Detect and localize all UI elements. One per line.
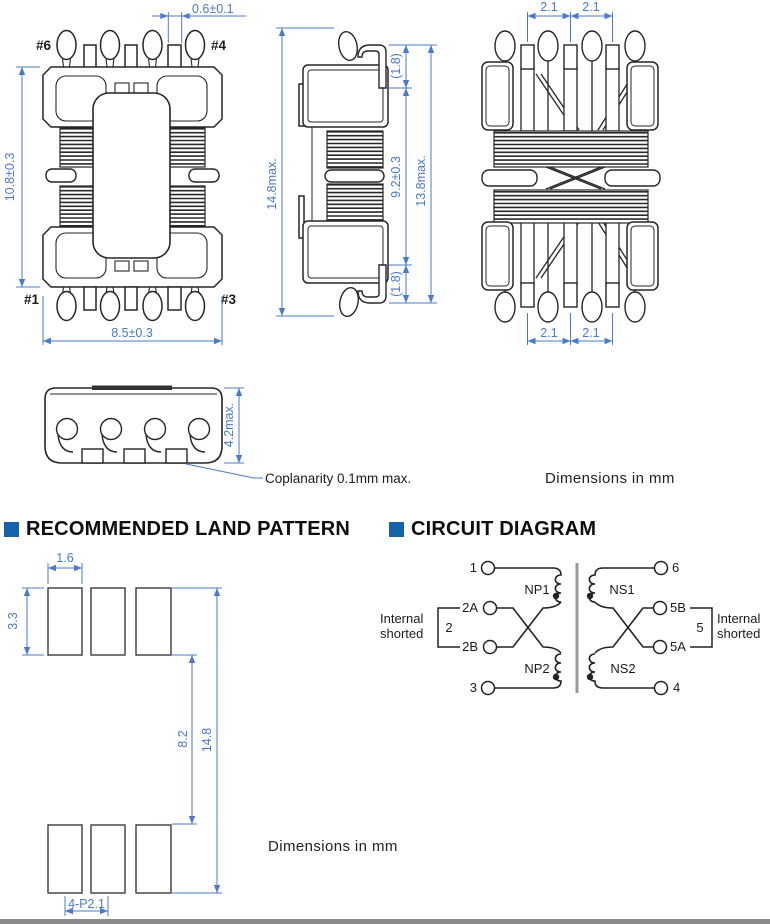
back-pin: [625, 31, 645, 61]
dim-row-gap: 8.2: [176, 730, 190, 747]
front-top-tab: [168, 45, 181, 68]
dim-total-height: 13.8max.: [414, 155, 428, 206]
dim-front-height: 10.8±0.3: [3, 153, 17, 202]
dimensions-note-top: Dimensions in mm: [545, 470, 675, 487]
dim-overall-height: 14.8: [200, 728, 214, 752]
back-pin: [582, 31, 602, 61]
winding-label-np1: NP1: [524, 582, 549, 597]
front-bottom-tab: [84, 287, 96, 310]
front-pin-3: [186, 292, 205, 321]
land-pad: [91, 588, 125, 655]
left-short-number: 2: [445, 620, 452, 635]
polarity-dot-np1: [553, 593, 559, 599]
dimensions-note-bottom: Dimensions in mm: [268, 838, 398, 855]
terminal-label-5b: 5B: [670, 600, 686, 615]
pin-label-1: #1: [24, 292, 40, 307]
back-pin: [538, 31, 558, 61]
terminal-2b: [484, 641, 497, 654]
dim-front-width: 8.5±0.3: [111, 326, 153, 340]
back-flange: [482, 62, 513, 130]
dim-overall-height: 14.8max.: [265, 158, 279, 209]
back-pin: [538, 292, 558, 322]
dim-bottom-height: 4.2max.: [222, 403, 236, 447]
back-cross-wires: [546, 167, 605, 189]
back-left-bar: [482, 170, 537, 186]
dim-pitch-top-1: 2.1: [540, 0, 557, 14]
dim-pitch-bottom-1: 2.1: [540, 326, 557, 340]
side-bottom-flange: [303, 221, 388, 283]
back-flange: [627, 222, 658, 290]
front-pin-4: [186, 31, 205, 60]
section-bullet-icon: [389, 522, 404, 537]
left-short-label-line1: Internal: [380, 611, 423, 626]
terminal-2a: [484, 602, 497, 615]
front-top-tab: [125, 45, 137, 68]
back-pin: [582, 292, 602, 322]
bottom-pin-head: [101, 419, 122, 440]
terminal-5b: [654, 602, 667, 615]
dim-pitch-top-2: 2.1: [582, 0, 599, 14]
terminal-4: [655, 682, 668, 695]
coplanarity-note: Coplanarity 0.1mm max.: [265, 471, 411, 486]
back-pin: [495, 292, 515, 322]
winding-label-ns1: NS1: [609, 582, 634, 597]
terminal-1: [482, 562, 495, 575]
front-pin: [101, 292, 120, 321]
back-flange: [482, 222, 513, 290]
back-pin: [625, 292, 645, 322]
circuit-diagram: 1 2A 2B 3 6 5B 5A 4 NP1 NP2 NS1 NS2 2 5 …: [380, 560, 760, 695]
front-pin: [101, 31, 120, 60]
side-bottom-pin: [337, 286, 361, 318]
datasheet-page: #6 #4 #1 #3 0.6±0.1 10.8±0.3 8.5±0.3: [0, 0, 770, 924]
terminal-label-2b: 2B: [462, 639, 478, 654]
front-top-tab: [84, 45, 96, 68]
section-bullet-icon: [4, 522, 19, 537]
right-short-label-line1: Internal: [717, 611, 760, 626]
winding-label-ns2: NS2: [610, 661, 635, 676]
dim-pitch: 4-P2.1: [68, 897, 105, 911]
dim-lead-top: (1.8): [389, 53, 403, 79]
back-right-bar: [605, 170, 660, 186]
front-pin: [143, 31, 162, 60]
view-front: #6 #4 #1 #3 0.6±0.1 10.8±0.3 8.5±0.3: [3, 2, 246, 345]
dim-body-height: 9.2±0.3: [389, 156, 403, 198]
side-top-flange: [303, 65, 388, 127]
polarity-dot-ns1: [587, 593, 593, 599]
terminal-label-2a: 2A: [462, 600, 478, 615]
land-pad: [91, 825, 125, 893]
view-bottom: 4.2max.: [45, 386, 263, 479]
coplanarity-leader-line: [186, 464, 263, 478]
terminal-5a: [654, 641, 667, 654]
view-back: 2.1 2.1 2.1 2.1: [482, 0, 660, 345]
right-short-number: 5: [696, 620, 703, 635]
side-tap-bar: [325, 170, 384, 182]
circuit-header-text: CIRCUIT DIAGRAM: [411, 518, 596, 541]
winding-label-np2: NP2: [524, 661, 549, 676]
terminal-label-1: 1: [470, 560, 477, 575]
land-pattern-section-header: RECOMMENDED LAND PATTERN: [4, 518, 350, 541]
front-bottom-tab: [168, 287, 181, 310]
front-bottom-tab: [125, 287, 137, 310]
pin-label-3: #3: [221, 292, 237, 307]
terminal-label-4: 4: [673, 680, 680, 695]
back-flange: [627, 62, 658, 130]
terminal-label-5a: 5A: [670, 639, 686, 654]
land-pad: [136, 825, 171, 893]
page-bottom-bar: [0, 919, 770, 924]
view-side: 14.8max. (1.8) 9.2±0.3 13.8max. (1.8): [265, 28, 437, 318]
terminal-6: [655, 562, 668, 575]
land-pattern-header-text: RECOMMENDED LAND PATTERN: [26, 518, 350, 541]
dim-tab-width: 0.6±0.1: [192, 2, 234, 16]
dim-pitch-bottom-2: 2.1: [582, 326, 599, 340]
front-left-tap-bar: [46, 169, 76, 182]
land-pad: [48, 825, 82, 893]
technical-drawing-canvas: #6 #4 #1 #3 0.6±0.1 10.8±0.3 8.5±0.3: [0, 0, 770, 924]
bottom-pin-head: [145, 419, 166, 440]
land-pad: [48, 588, 82, 655]
back-pin: [495, 31, 515, 61]
terminal-label-3: 3: [470, 680, 477, 695]
bottom-pin-head: [57, 419, 78, 440]
right-short-label-line2: shorted: [717, 626, 760, 641]
land-pad: [136, 588, 171, 655]
polarity-dot-ns2: [587, 674, 593, 680]
terminal-3: [482, 682, 495, 695]
front-pin: [143, 292, 162, 321]
front-pin-6: [57, 31, 76, 60]
circuit-section-header: CIRCUIT DIAGRAM: [389, 518, 596, 541]
pin-label-6: #6: [36, 38, 52, 53]
dim-pad-height: 3.3: [6, 612, 20, 629]
front-pin-1: [57, 292, 76, 321]
front-center-leg: [93, 93, 170, 258]
terminal-label-6: 6: [672, 560, 679, 575]
land-pattern-drawing: 1.6 3.3 8.2 14.8 4-P2.1: [6, 551, 222, 916]
dim-pad-width: 1.6: [56, 551, 73, 565]
dim-lead-bottom: (1.8): [389, 271, 403, 297]
bottom-pin-head: [189, 419, 210, 440]
front-right-tap-bar: [189, 169, 219, 182]
side-top-pin: [336, 30, 360, 62]
polarity-dot-np2: [553, 674, 559, 680]
left-short-label-line2: shorted: [380, 626, 423, 641]
pin-label-4: #4: [211, 38, 227, 53]
